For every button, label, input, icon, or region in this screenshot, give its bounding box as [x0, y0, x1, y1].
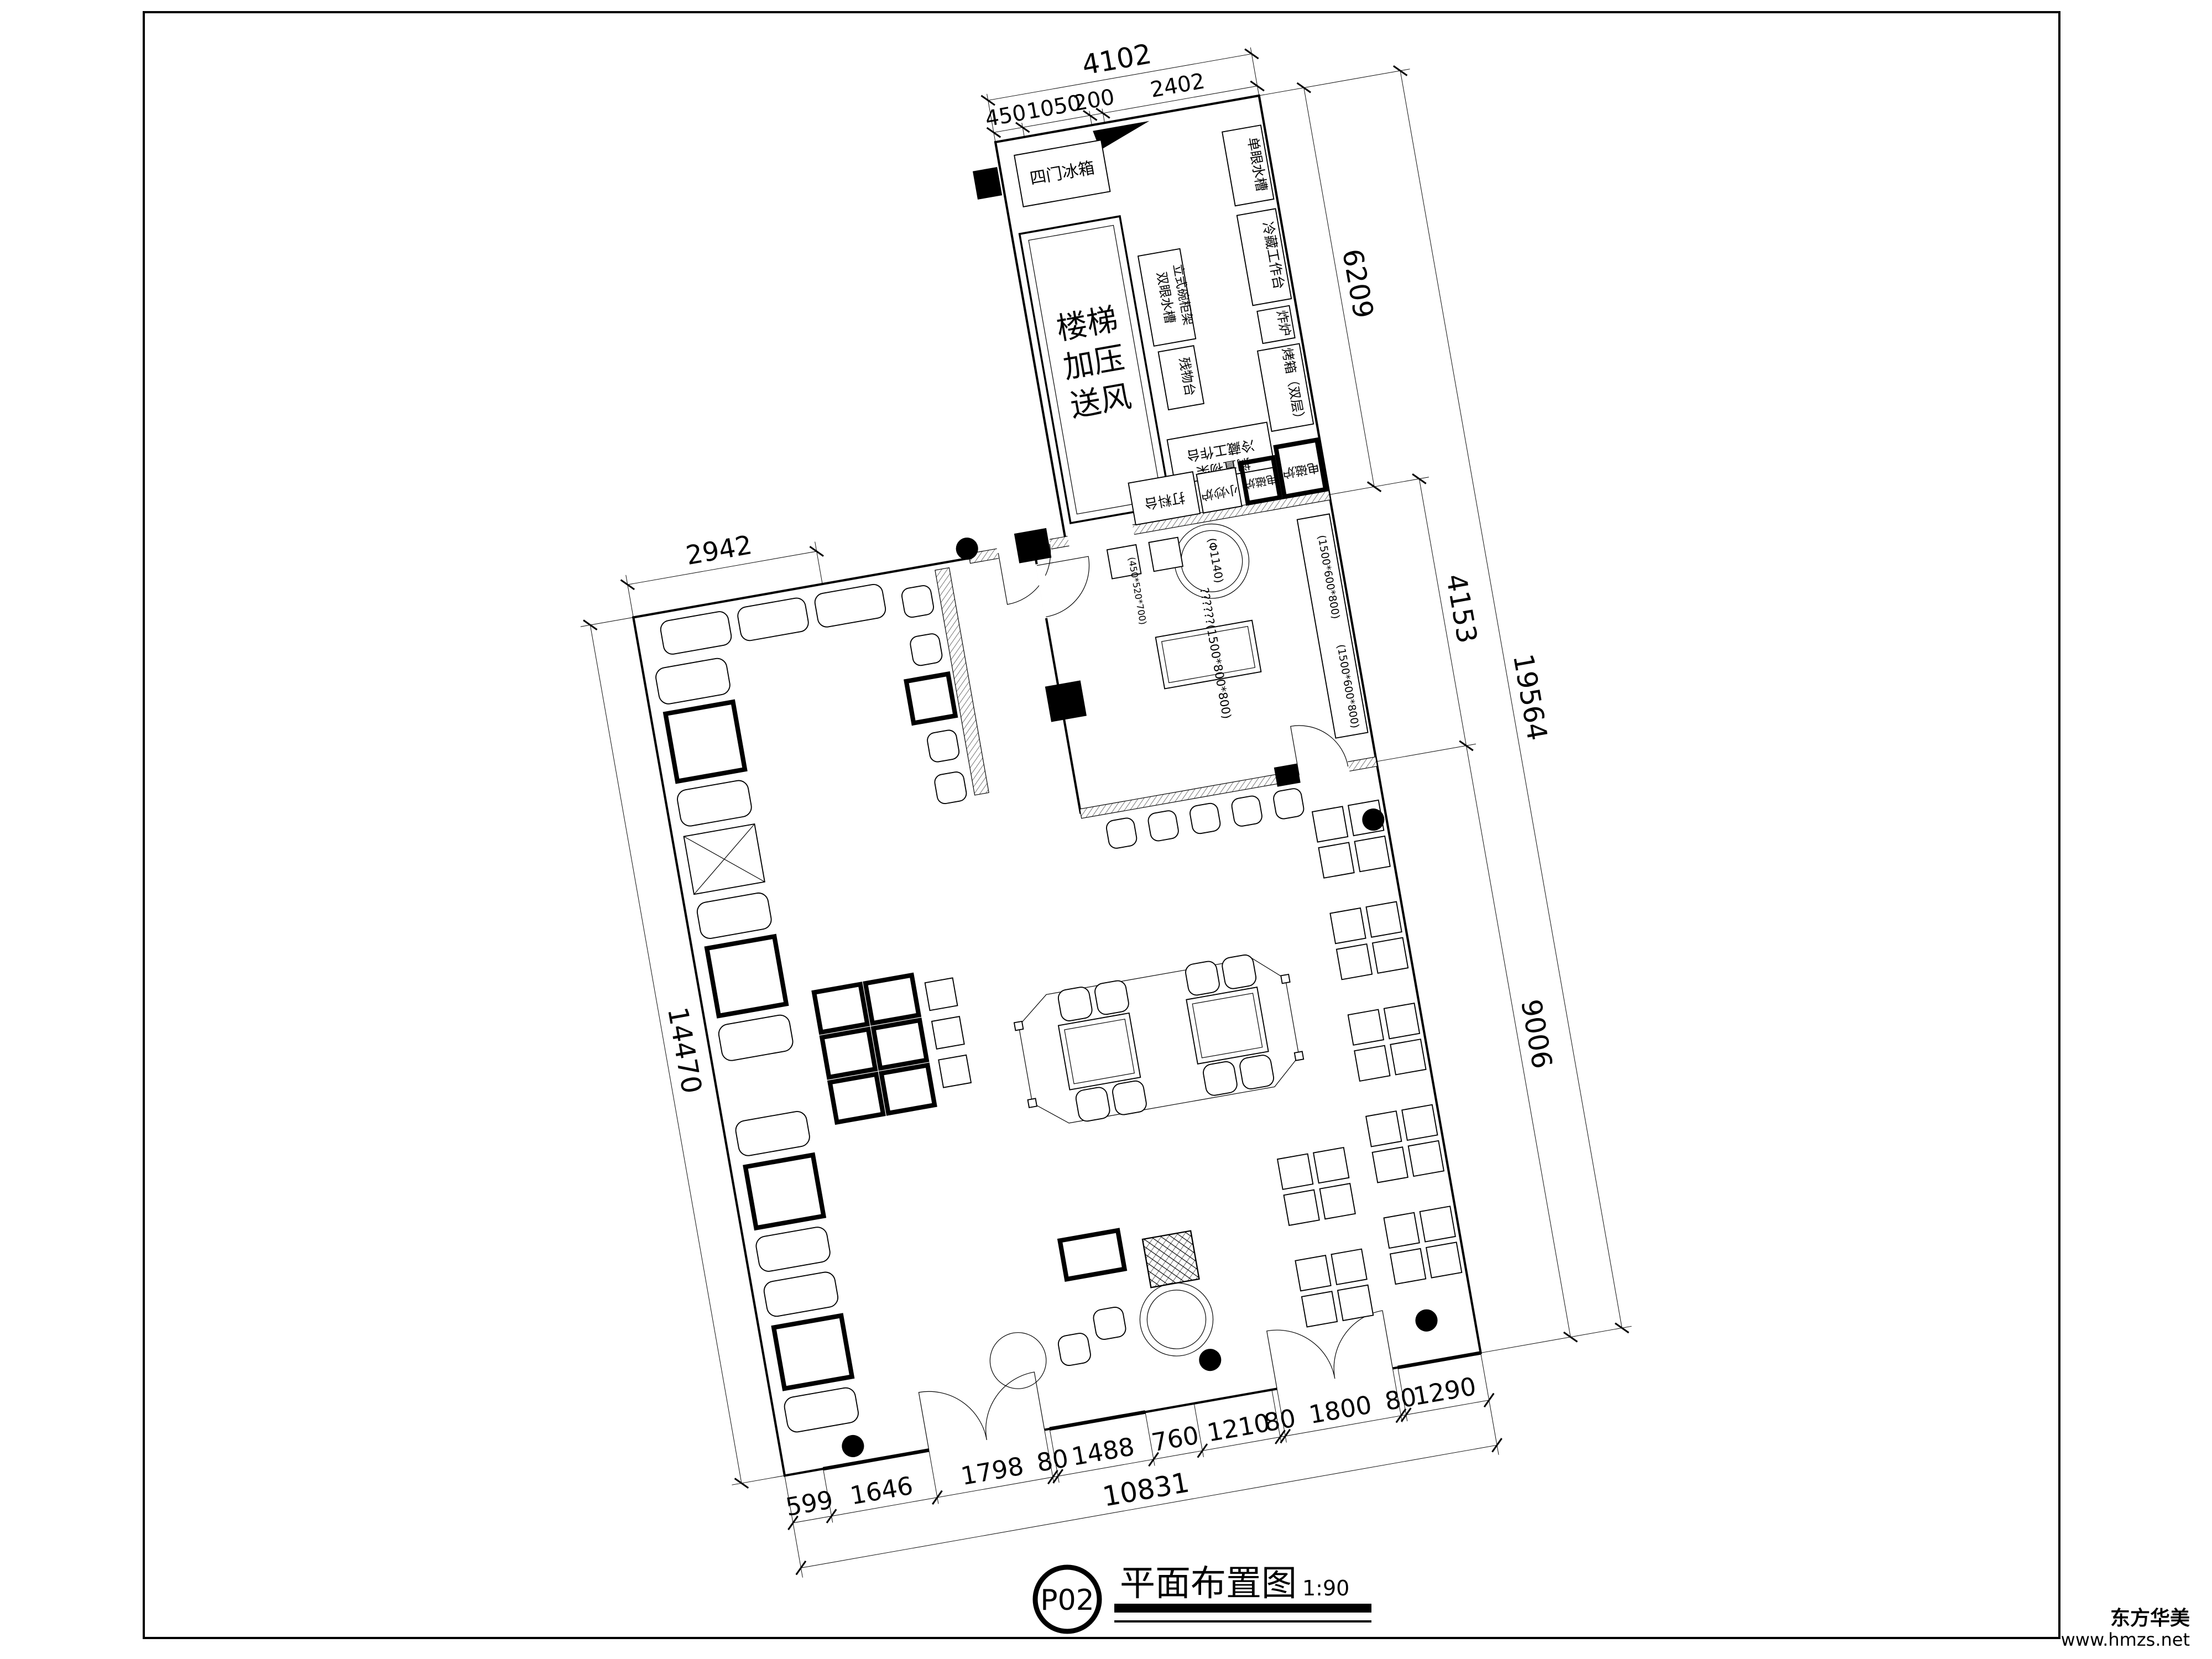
plan-group: 楼梯 加压 送风 四门冰箱 单眼水槽 冷藏工作台 炸炉 烤箱（双层） 双眼水槽 … [497, 0, 1675, 1587]
entry-door-right [1267, 1311, 1394, 1397]
dim-bottom-seg-2: 1798 [958, 1451, 1026, 1491]
left-wing-seating [646, 568, 1092, 1434]
drawing-title: 平面布置图 [1120, 1563, 1297, 1604]
dim-right-total: 19564 [1507, 651, 1553, 743]
dim-bottom-seg-3: 80 [1035, 1443, 1071, 1478]
watermark-brand: 东方华美 [2110, 1607, 2190, 1630]
entry-door-left [919, 1372, 1046, 1459]
feature-column [1142, 1231, 1199, 1288]
dim-left-top: 2942 [684, 530, 754, 571]
dim-bottom-seg-4: 1488 [1070, 1432, 1137, 1472]
dim-bottom-seg-10: 1290 [1411, 1371, 1479, 1411]
dim-bottom-total: 10831 [1100, 1466, 1192, 1512]
induction1-label: 电磁炉 [1243, 472, 1278, 491]
dim-bottom-seg-7: 80 [1262, 1403, 1298, 1437]
drawing-scale: 1:90 [1302, 1576, 1349, 1600]
watermark: 东方华美 www.hmzs.net [2061, 1607, 2190, 1650]
bar-counter [1060, 1230, 1125, 1279]
dim-top-seg-2: 200 [1072, 85, 1117, 116]
dining-hall-furniture [901, 774, 1468, 1393]
drawing-sheet: 楼梯 加压 送风 四门冰箱 单眼水槽 冷藏工作台 炸炉 烤箱（双层） 双眼水槽 … [0, 0, 2212, 1659]
dim-bottom-seg-5: 760 [1149, 1420, 1201, 1457]
dim-top-seg-3: 2402 [1149, 69, 1207, 103]
dim-bottom-seg-1: 1646 [848, 1471, 915, 1511]
dim-bottom-seg-0: 599 [784, 1485, 835, 1522]
dim-bottom-seg-6: 1210 [1205, 1408, 1272, 1448]
induction2-label: 电磁炉 [1281, 460, 1321, 480]
dim-left-side: 14470 [661, 1005, 708, 1096]
middle-room-equipment: ??????(1500*800*800) (Φ1140) (1500*600*8… [1105, 503, 1368, 772]
dim-top-total: 4102 [1079, 38, 1154, 81]
sheet-code: P02 [1040, 1584, 1094, 1617]
round-table-spec: (Φ1140) [1205, 537, 1226, 584]
watermark-url: www.hmzs.net [2061, 1629, 2190, 1650]
dim-right-mid: 4153 [1439, 571, 1483, 645]
dim-right-lower: 9006 [1515, 997, 1558, 1071]
kitchen-pass-opening [1067, 521, 1134, 549]
dim-bottom-seg-8: 1800 [1307, 1390, 1374, 1430]
dim-right-kitchen: 6209 [1336, 247, 1380, 321]
title-block: P02 平面布置图 1:90 [1035, 1563, 1371, 1631]
small-table-spec: (450*520*700) [1126, 556, 1148, 625]
floor-plan-svg: 楼梯 加压 送风 四门冰箱 单眼水槽 冷藏工作台 炸炉 烤箱（双层） 双眼水槽 … [0, 0, 2212, 1659]
